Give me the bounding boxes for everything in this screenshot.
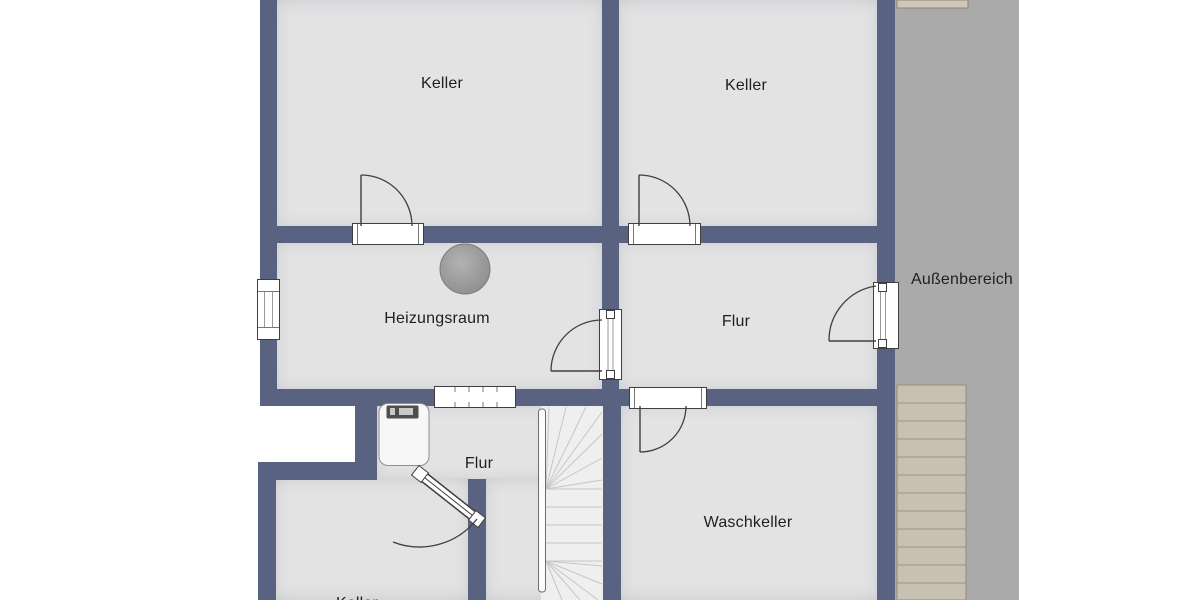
label-waschkeller: Waschkeller (704, 514, 793, 532)
door-diagonal-keller-bottom (393, 466, 485, 547)
label-flur-lower: Flur (465, 455, 493, 473)
door-keller-right (629, 175, 701, 245)
label-aussenbereich: Außenbereich (911, 271, 1013, 289)
window-heizungsraum-south (435, 387, 516, 408)
exterior-stair-landing (897, 0, 968, 8)
label-heizungsraum: Heizungsraum (384, 310, 490, 328)
exterior-staircase (897, 0, 968, 600)
label-keller-right: Keller (725, 77, 767, 95)
door-heizungsraum (551, 310, 622, 380)
door-waschkeller (630, 388, 707, 453)
label-flur-upper: Flur (722, 313, 750, 331)
washbasin (379, 404, 429, 466)
plan-detail-layer (0, 0, 1200, 600)
label-keller-left: Keller (421, 75, 463, 93)
heating-boiler (440, 244, 490, 294)
floorplan-canvas: Keller Keller Heizungsraum Flur Außenber… (0, 0, 1200, 600)
window-heizungsraum-west (258, 280, 280, 340)
door-exterior-flur (829, 283, 899, 349)
label-keller-bottom-cutoff: Keller (336, 595, 378, 600)
interior-staircase (539, 406, 604, 600)
door-keller-left (353, 175, 424, 245)
stair-handrail (539, 409, 546, 592)
